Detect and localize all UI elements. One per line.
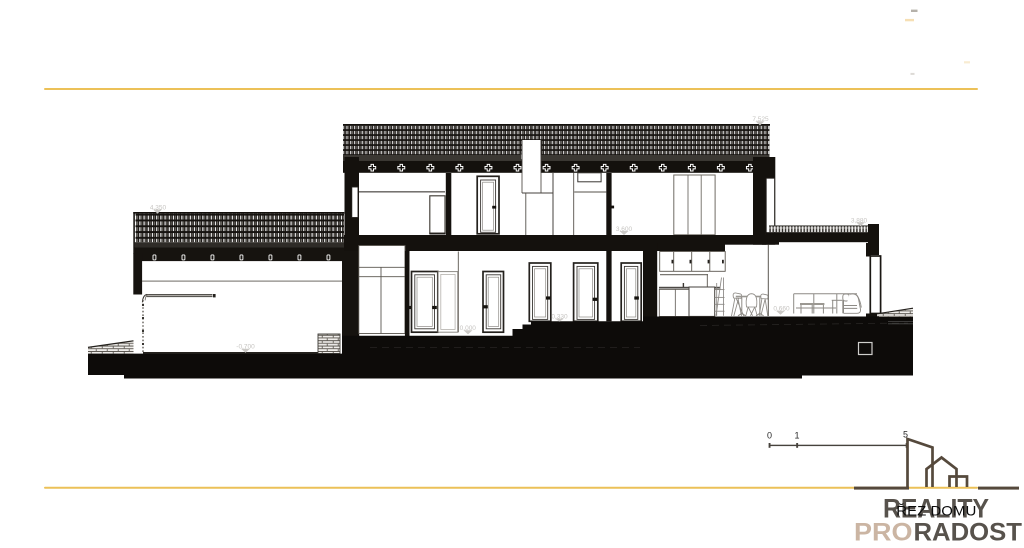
svg-text:PRO: PRO [854,519,913,547]
svg-text:ŘEZ DOMU: ŘEZ DOMU [896,503,976,519]
svg-text:RADOST: RADOST [914,519,1023,547]
svg-text:0: 0 [767,431,772,441]
svg-text:1: 1 [794,431,799,441]
